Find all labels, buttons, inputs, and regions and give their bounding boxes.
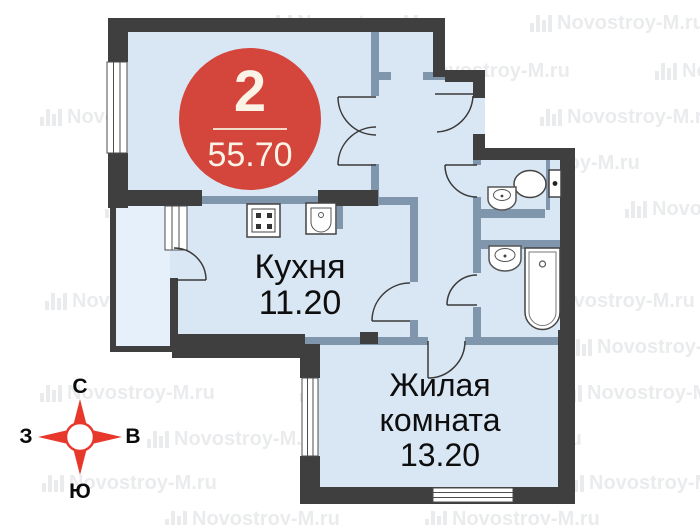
living-name-line2: комната <box>345 403 535 438</box>
badge-rooms-count: 2 <box>234 63 266 121</box>
kitchen-sink-icon <box>306 203 336 234</box>
kitchen-area: 11.20 <box>205 285 395 321</box>
compass-rose-icon <box>38 399 122 475</box>
compass-north-label: С <box>67 375 93 399</box>
badge-total-area: 55.70 <box>207 138 292 172</box>
living-room-label: Жилая комната 13.20 <box>345 368 535 473</box>
window-living-bottom <box>433 488 513 502</box>
window-room1-left <box>107 62 127 153</box>
bathtub-icon <box>525 248 560 330</box>
toilet-icon <box>514 170 561 198</box>
kitchen-label: Кухня 11.20 <box>205 249 395 321</box>
stove-icon <box>247 204 280 237</box>
compass-south-label: Ю <box>67 480 93 504</box>
window-living-left <box>302 378 318 456</box>
badge-divider <box>213 128 287 130</box>
kitchen-name: Кухня <box>205 249 395 285</box>
wc-washbasin-icon <box>488 187 516 210</box>
balcony-floor <box>112 206 170 352</box>
window-balcony-kitchen <box>165 206 187 250</box>
apartment-badge: 2 55.70 <box>179 48 321 190</box>
living-area: 13.20 <box>345 438 535 473</box>
living-name-line1: Жилая <box>345 368 535 403</box>
floor-plan-page: Novostroy-M.ru Novostroy-M.ru Novostroy-… <box>0 0 700 525</box>
compass-west-label: З <box>13 425 39 449</box>
entrance-doorway-floor <box>473 96 485 136</box>
compass-east-label: В <box>120 425 146 449</box>
bathroom-washbasin-icon <box>489 246 521 271</box>
